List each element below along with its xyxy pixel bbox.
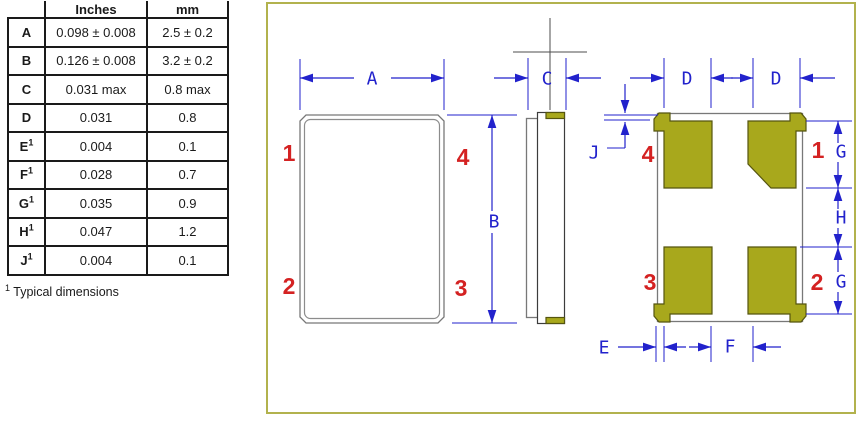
dim-label: F1 xyxy=(8,161,45,190)
dim-label: D xyxy=(8,104,45,133)
table-row: B0.126 ± 0.0083.2 ± 0.2 xyxy=(8,47,228,76)
dim-label-F: F xyxy=(725,337,736,358)
mm-value: 0.1 xyxy=(147,132,228,161)
side-view-body-outline xyxy=(538,113,565,324)
front-pin-1: 1 xyxy=(283,140,296,166)
dim-label: A xyxy=(8,18,45,47)
dimension-table: Inches mm A0.098 ± 0.0082.5 ± 0.2B0.126 … xyxy=(7,1,229,276)
table-row: A0.098 ± 0.0082.5 ± 0.2 xyxy=(8,18,228,47)
table-row: D0.0310.8 xyxy=(8,104,228,133)
table-row: C0.031 max0.8 max xyxy=(8,75,228,104)
side-view: C xyxy=(494,18,601,324)
mm-value: 3.2 ± 0.2 xyxy=(147,47,228,76)
dim-label-G-top: G xyxy=(836,142,847,163)
back-pin-2: 2 xyxy=(811,269,824,295)
dim-label-J: J xyxy=(589,143,600,164)
dimension-table-body: A0.098 ± 0.0082.5 ± 0.2B0.126 ± 0.0083.2… xyxy=(8,18,228,275)
table-row: H10.0471.2 xyxy=(8,218,228,247)
side-view-top-pad xyxy=(546,113,565,119)
mm-value: 0.8 max xyxy=(147,75,228,104)
inches-value: 0.047 xyxy=(45,218,147,247)
table-header-row: Inches mm xyxy=(8,1,228,18)
inches-value: 0.031 max xyxy=(45,75,147,104)
dim-label-A: A xyxy=(367,69,378,90)
dim-label: H1 xyxy=(8,218,45,247)
dim-label: J1 xyxy=(8,246,45,275)
front-view: A B 1 4 2 3 xyxy=(283,59,517,323)
front-pin-4: 4 xyxy=(457,144,470,170)
dim-label-E: E xyxy=(599,338,610,359)
back-pin-3: 3 xyxy=(644,269,657,295)
inches-value: 0.028 xyxy=(45,161,147,190)
dim-label: G1 xyxy=(8,189,45,218)
dim-label-D-right: D xyxy=(771,69,782,90)
inches-value: 0.004 xyxy=(45,132,147,161)
mm-value: 1.2 xyxy=(147,218,228,247)
back-view: 4 1 3 2 D D J E F xyxy=(589,58,852,362)
front-pin-2: 2 xyxy=(283,273,296,299)
header-inches: Inches xyxy=(45,1,147,18)
table-footnote: 1 Typical dimensions xyxy=(5,285,119,299)
inches-value: 0.004 xyxy=(45,246,147,275)
dim-label-H: H xyxy=(836,208,847,229)
mm-value: 0.1 xyxy=(147,246,228,275)
header-dim xyxy=(8,1,45,18)
dim-label-G-bottom: G xyxy=(836,272,847,293)
inches-value: 0.126 ± 0.008 xyxy=(45,47,147,76)
table-row: F10.0280.7 xyxy=(8,161,228,190)
back-pin-1: 1 xyxy=(812,137,825,163)
package-drawing: A B 1 4 2 3 C 4 1 3 2 xyxy=(266,2,856,414)
front-view-outer-outline xyxy=(300,115,444,323)
dim-label: B xyxy=(8,47,45,76)
footnote-text: Typical dimensions xyxy=(10,285,119,299)
dim-label-D-left: D xyxy=(682,69,693,90)
dim-label-B: B xyxy=(489,212,500,233)
back-pin-4: 4 xyxy=(642,141,655,167)
table-row: J10.0040.1 xyxy=(8,246,228,275)
mm-value: 0.9 xyxy=(147,189,228,218)
inches-value: 0.031 xyxy=(45,104,147,133)
table-row: G10.0350.9 xyxy=(8,189,228,218)
dim-label: E1 xyxy=(8,132,45,161)
inches-value: 0.035 xyxy=(45,189,147,218)
table-row: E10.0040.1 xyxy=(8,132,228,161)
header-mm: mm xyxy=(147,1,228,18)
dim-label: C xyxy=(8,75,45,104)
dim-label-C: C xyxy=(542,69,553,90)
mm-value: 0.7 xyxy=(147,161,228,190)
inches-value: 0.098 ± 0.008 xyxy=(45,18,147,47)
side-view-bottom-pad xyxy=(546,318,565,324)
front-pin-3: 3 xyxy=(455,275,468,301)
mm-value: 0.8 xyxy=(147,104,228,133)
mm-value: 2.5 ± 0.2 xyxy=(147,18,228,47)
